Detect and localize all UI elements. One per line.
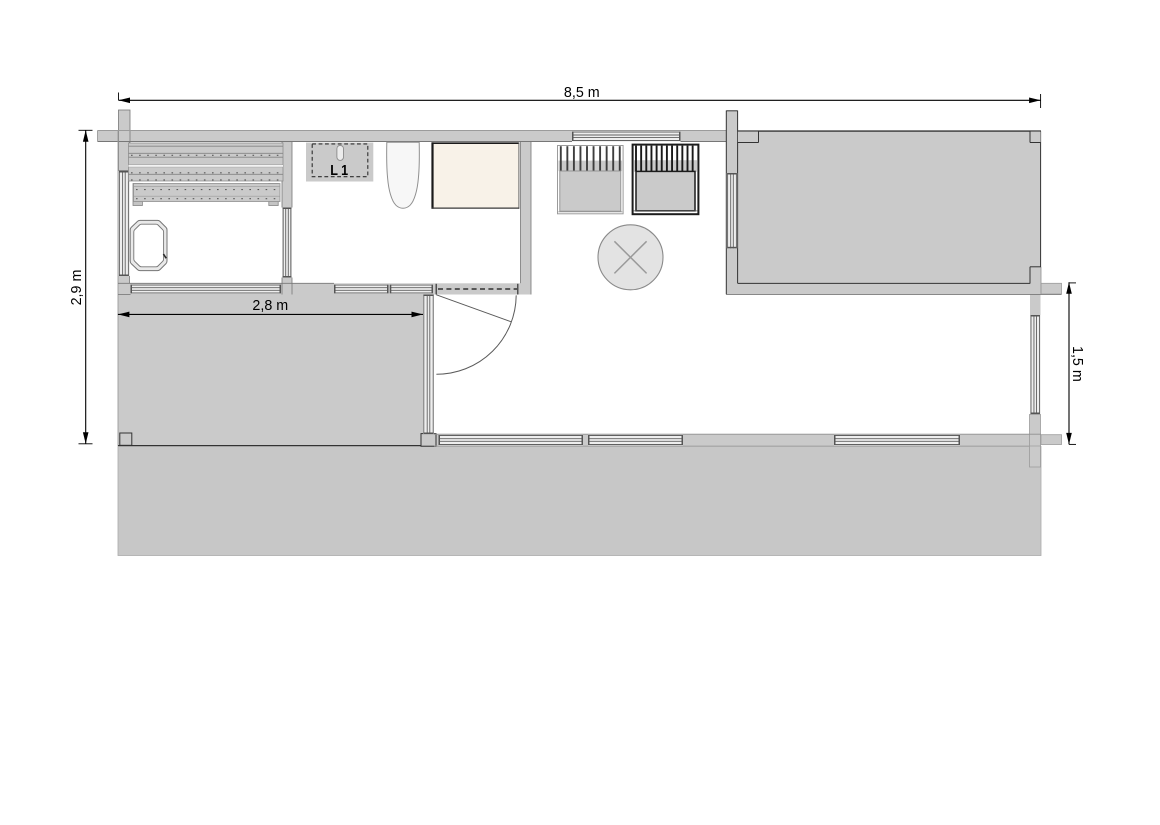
svg-text:1,5 m: 1,5 m <box>1069 346 1085 382</box>
svg-text:2,8 m: 2,8 m <box>252 298 288 314</box>
svg-text:L 1: L 1 <box>330 162 348 179</box>
svg-text:8,5 m: 8,5 m <box>564 85 600 101</box>
svg-text:2,9 m: 2,9 m <box>69 270 85 306</box>
